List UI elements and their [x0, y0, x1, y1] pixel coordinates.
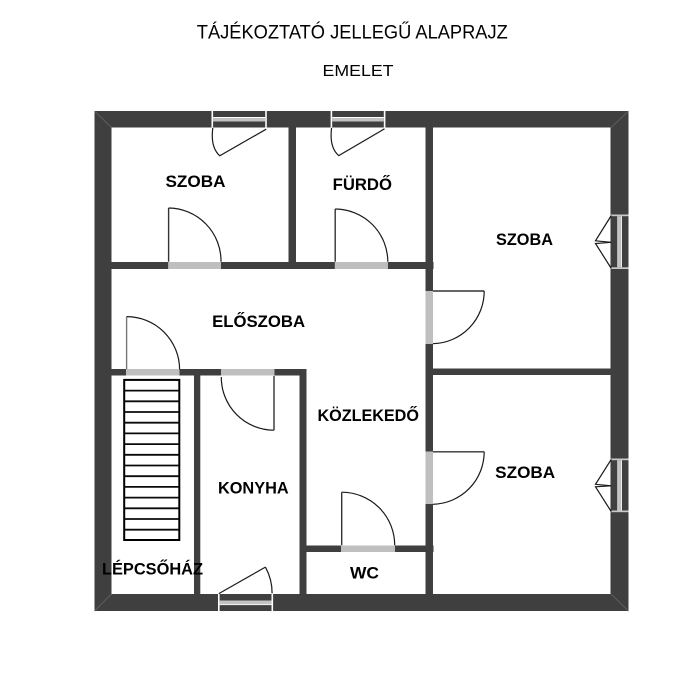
- svg-text:ELŐSZOBA: ELŐSZOBA: [212, 312, 305, 331]
- svg-text:SZOBA: SZOBA: [495, 463, 555, 482]
- svg-text:SZOBA: SZOBA: [496, 230, 553, 249]
- svg-text:SZOBA: SZOBA: [166, 172, 226, 191]
- svg-text:KÖZLEKEDŐ: KÖZLEKEDŐ: [317, 406, 419, 425]
- svg-text:FÜRDŐ: FÜRDŐ: [333, 175, 392, 194]
- svg-text:LÉPCSŐHÁZ: LÉPCSŐHÁZ: [102, 560, 203, 579]
- svg-text:KONYHA: KONYHA: [218, 478, 289, 497]
- svg-text:EMELET: EMELET: [323, 63, 394, 80]
- svg-text:TÁJÉKOZTATÓ JELLEGŰ ALAPRAJZ: TÁJÉKOZTATÓ JELLEGŰ ALAPRAJZ: [197, 22, 508, 44]
- svg-text:WC: WC: [350, 564, 379, 583]
